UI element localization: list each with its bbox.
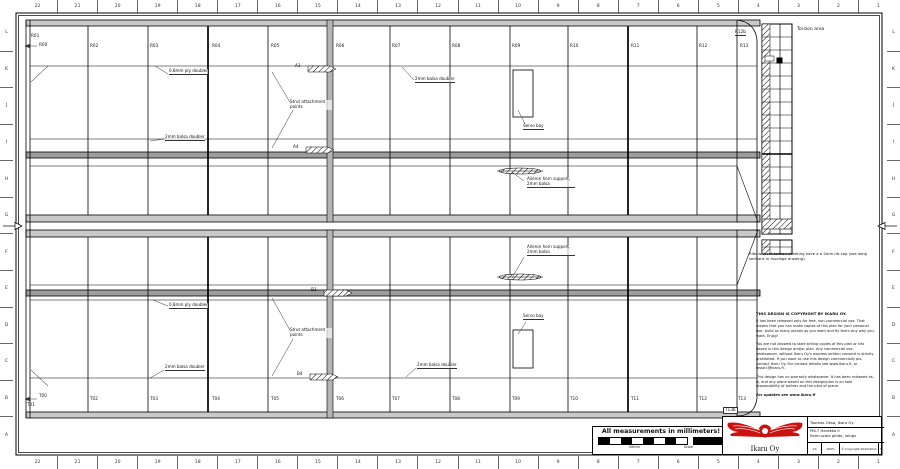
annotation-balsa-doubler: 2mm balsa doubler [415, 77, 455, 83]
scale-bar-solid-icon [693, 437, 725, 445]
rib-label: R12 [699, 44, 707, 49]
title-block: Ikaru Oy Tuomas Oksa, Ikaru Oy PIK-7 Har… [722, 416, 882, 455]
scale-bar-caption: Scale [684, 445, 693, 449]
rib-label: T00 [39, 394, 47, 399]
rib-label: T13 [738, 397, 746, 402]
rib-label: T09 [512, 397, 520, 402]
rib-label: R01 [31, 34, 39, 39]
rib-label: T08 [452, 397, 460, 402]
measurements-box: All measurements in millimeters! 50mm Sc… [592, 426, 730, 455]
rib-label: R00 [39, 43, 47, 48]
scale-bar-icon [598, 437, 688, 445]
rib-label: R08 [452, 44, 460, 49]
copyright-cell: © Copyright 2010/2011 [840, 443, 879, 454]
rev-cell: % [879, 443, 884, 454]
torsion-area-strip [762, 24, 792, 254]
copyright-heading: THIS DESIGN IS COPYRIGHT BY IKARU OY. [756, 311, 875, 316]
copyright-updates-line: For updates see www.ikaru.fi [756, 393, 875, 398]
rib-label: R05 [271, 44, 279, 49]
leader-lines [25, 44, 526, 401]
annotation-ply-doubler: 0.8mm ply doubler [169, 69, 208, 75]
project-subtitle: Semi-scale glider, wings [810, 434, 884, 439]
rib-label: T13b [723, 407, 738, 414]
rib-label: T02 [90, 397, 98, 402]
rib-label: R07 [392, 44, 400, 49]
rib-label: R09 [512, 44, 520, 49]
print-scale-cell: 100% [822, 443, 840, 454]
rib-label: T05 [271, 397, 279, 402]
wing-panel-bottom [26, 230, 760, 418]
copyright-paragraph: It has been released only for free, non-… [756, 319, 875, 338]
torsion-area-label: Torsion area [797, 27, 824, 32]
annotation-aileron-horn: Aileron horn support, 2mm balsa [527, 245, 575, 256]
annotation-balsa-doubler: 2mm balsa doubler [165, 135, 205, 141]
scale-bar-length-label: 50mm [629, 445, 640, 449]
rib-label: R03 [150, 44, 158, 49]
annotation-strut-points: Strut attachment points [290, 100, 332, 110]
copyright-paragraph: You are not allowed to start selling cop… [756, 342, 875, 371]
annotation-balsa-doubler: 2mm balsa doubler [417, 363, 457, 369]
rib-label: T10 [570, 397, 578, 402]
rib-label: T03 [150, 397, 158, 402]
title-block-info: Tuomas Oksa, Ikaru Oy PIK-7 Harakka II S… [808, 417, 884, 454]
strut-point-label: B4 [297, 372, 303, 377]
rib-label: R12b [735, 30, 746, 36]
copyright-paragraph: This design has no warranty whatsoever. … [756, 375, 875, 390]
annotation-ply-doubler: 0.8mm ply doubler [169, 303, 208, 309]
rib-label: T12 [699, 397, 707, 402]
rib-label: T01 [27, 403, 35, 408]
annotation-balsa-doubler: 2mm balsa doubler [165, 365, 205, 371]
strut-point-label: B3 [311, 288, 317, 293]
rib-label: T11 [631, 397, 639, 402]
company-logo-cell: Ikaru Oy [723, 417, 808, 454]
company-name: Ikaru Oy [723, 444, 807, 453]
rib-label: R06 [336, 44, 344, 49]
rib-label: T04 [212, 397, 220, 402]
measurements-title: All measurements in millimeters! [593, 428, 729, 435]
annotation-servo-bay: Servo bay [523, 124, 544, 130]
rib-label: T06 [336, 397, 344, 402]
annotation-aileron-horn: Aileron horn support, 2mm balsa [527, 177, 575, 188]
copyright-block: THIS DESIGN IS COPYRIGHT BY IKARU OY. It… [756, 311, 875, 401]
strut-point-label: A4 [293, 145, 299, 150]
rib-label: R10 [570, 44, 578, 49]
rib-cap-note: Ribs without torsion sheeting have a a 2… [749, 251, 879, 261]
rib-label: R04 [212, 44, 220, 49]
sheet-size-cell: A3 [808, 443, 822, 454]
rib-label: R11 [631, 44, 639, 49]
annotation-strut-points: Strut attachment points [290, 328, 332, 338]
annotation-servo-bay: Servo bay [523, 314, 544, 320]
wing-panel-top [26, 20, 760, 222]
strut-point-label: A3 [295, 64, 301, 69]
rib-label: R13 [740, 44, 748, 49]
drawing-sheet: 22212019181716151413121110987654321 2221… [0, 0, 900, 469]
title-block-author: Tuomas Oksa, Ikaru Oy [808, 417, 884, 428]
rib-label: R02 [90, 44, 98, 49]
rib-label: T07 [392, 397, 400, 402]
title-block-project: PIK-7 Harakka II Semi-scale glider, wing… [808, 428, 884, 443]
